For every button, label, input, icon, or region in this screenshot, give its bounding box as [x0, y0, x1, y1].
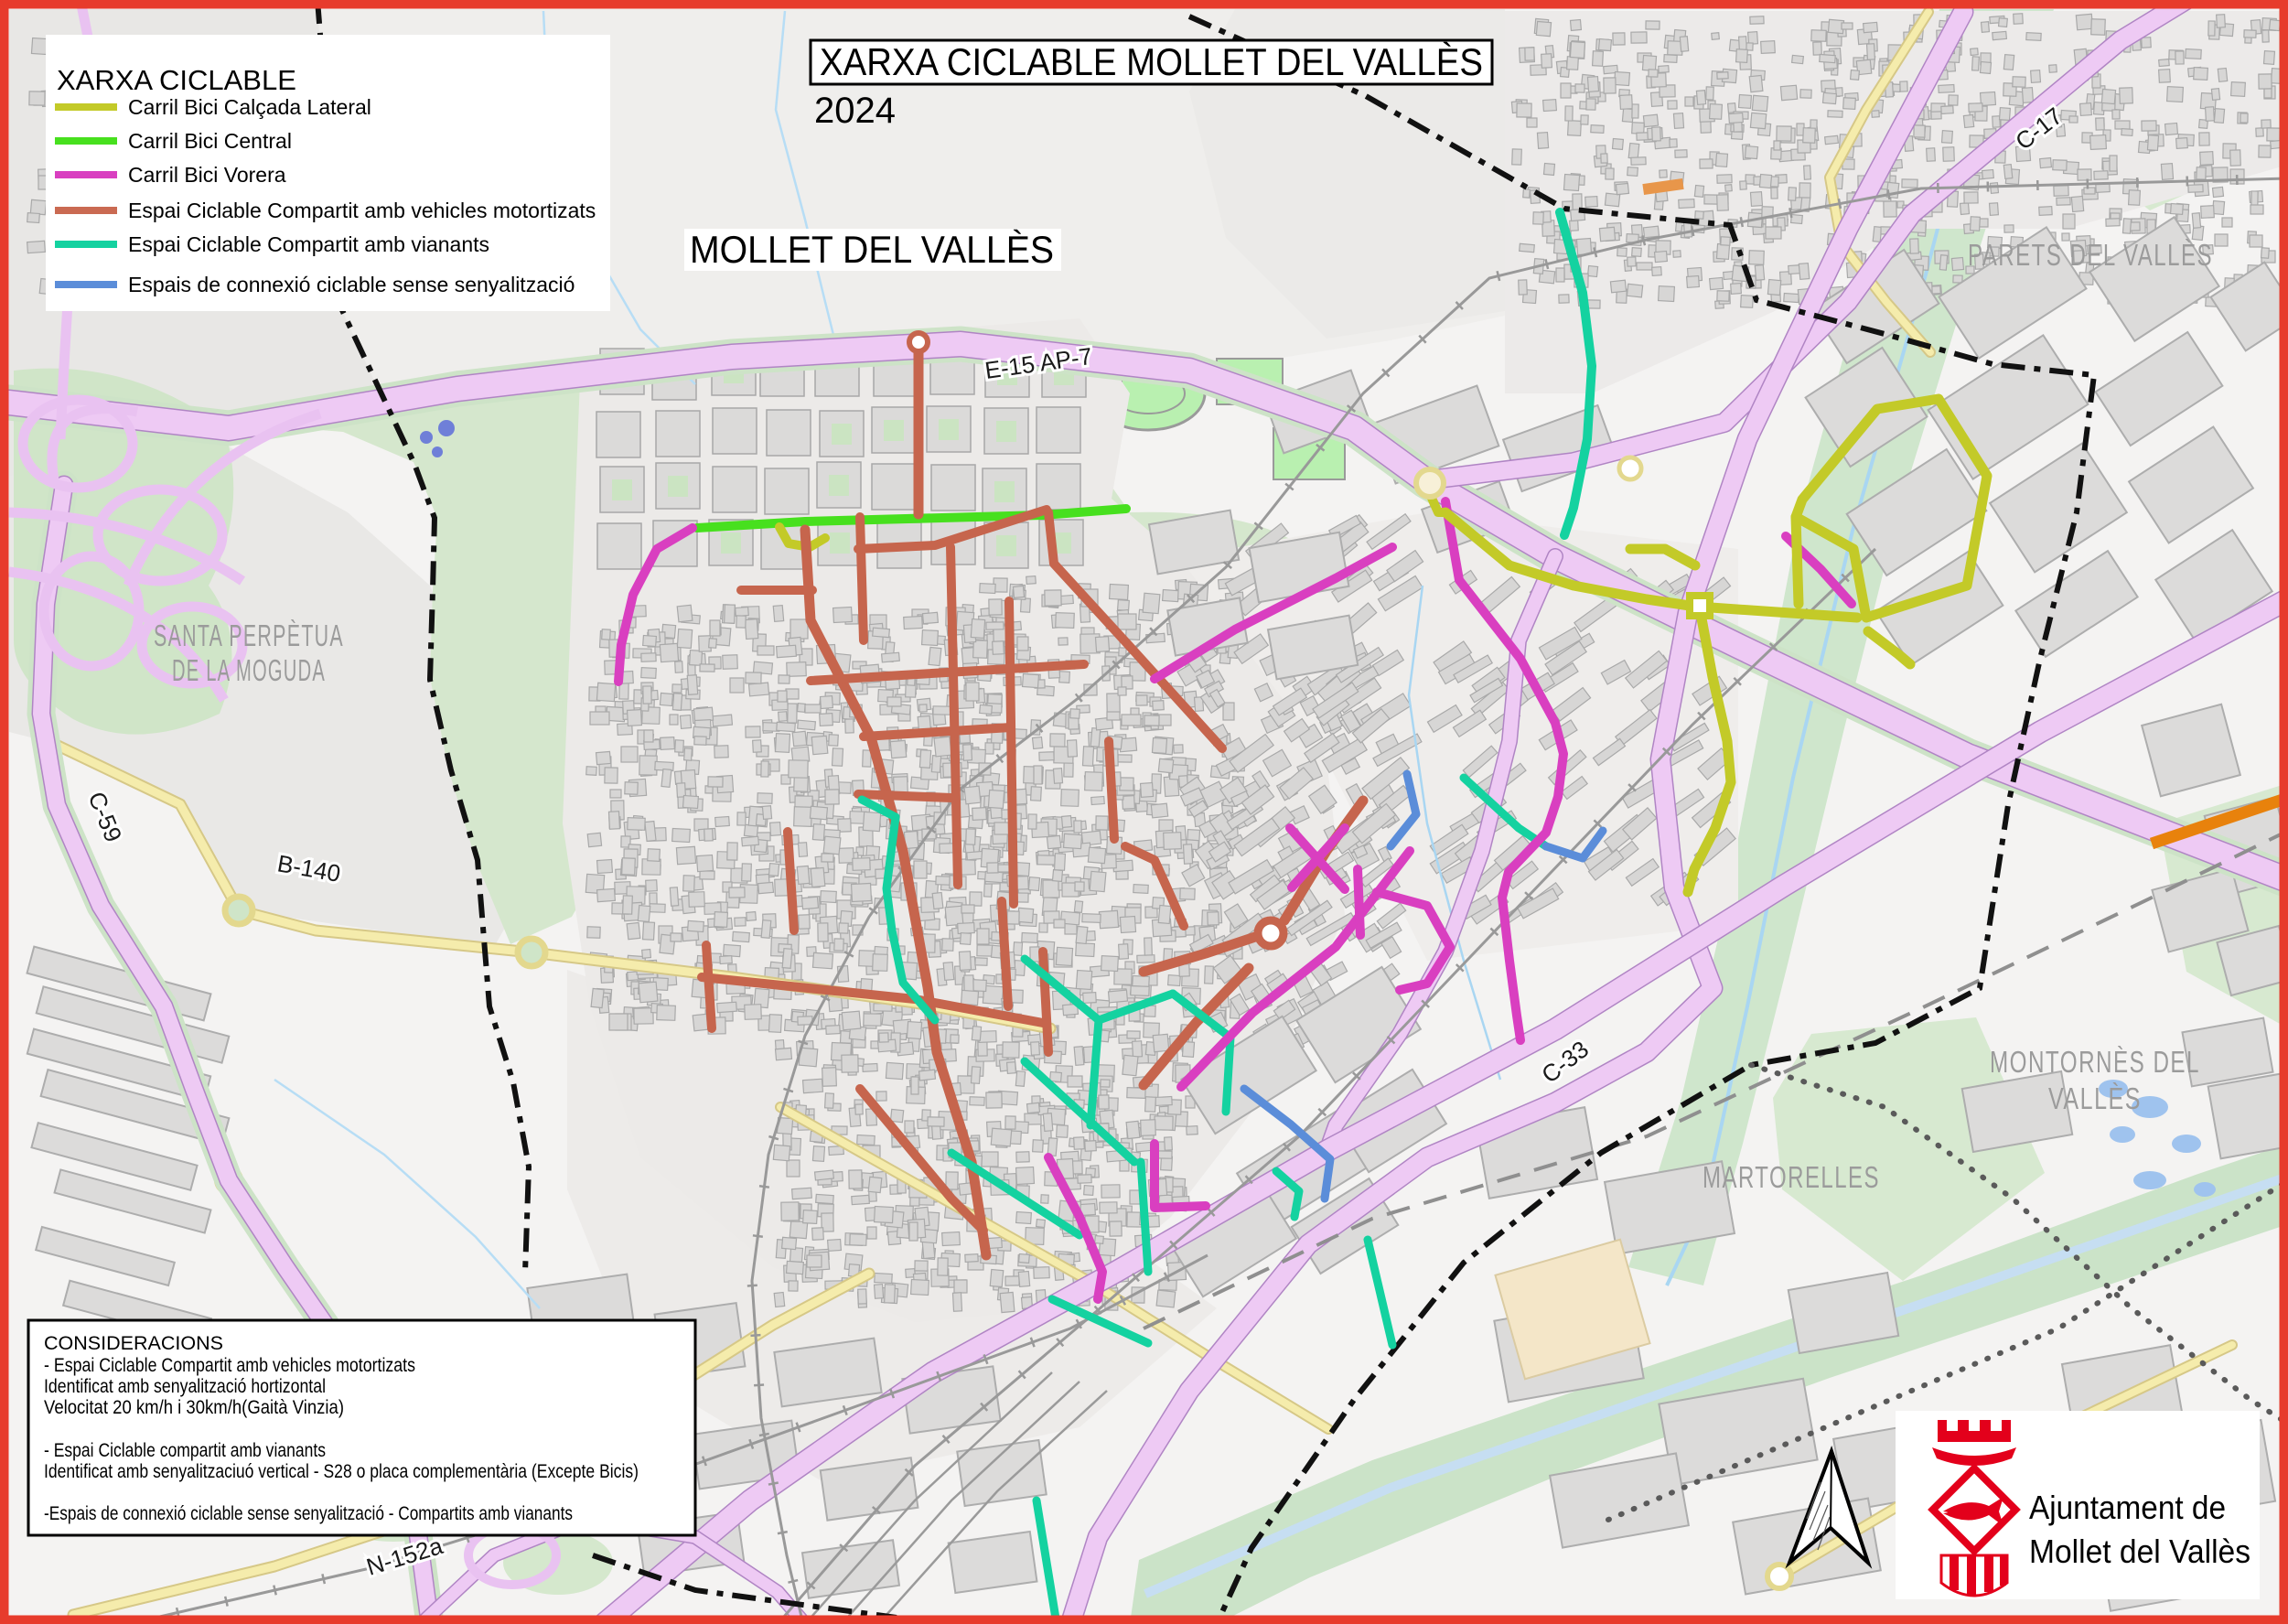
svg-text:XARXA CICLABLE: XARXA CICLABLE [57, 64, 296, 96]
svg-text:- Espai Ciclable compartit amb: - Espai Ciclable compartit amb vianants [44, 1440, 326, 1461]
svg-text:MARTORELLES: MARTORELLES [1703, 1160, 1880, 1194]
svg-text:MOLLET DEL VALLÈS: MOLLET DEL VALLÈS [690, 228, 1054, 271]
svg-text:-Espais de connexió ciclable s: -Espais de connexió ciclable sense senya… [44, 1503, 573, 1524]
svg-text:2024: 2024 [814, 91, 896, 131]
svg-text:Identificat amb senyalització: Identificat amb senyalització hortizonta… [44, 1376, 326, 1397]
svg-text:Mollet del Vallès: Mollet del Vallès [2029, 1533, 2250, 1570]
svg-text:Ajuntament de: Ajuntament de [2029, 1489, 2226, 1526]
svg-text:Espai Ciclable Compartit amb v: Espai Ciclable Compartit amb vehicles mo… [128, 199, 596, 222]
svg-text:DE LA MOGUDA: DE LA MOGUDA [172, 653, 326, 687]
svg-text:Espais de connexió ciclable se: Espais de connexió ciclable sense senyal… [128, 273, 575, 296]
svg-text:SANTA PERPÈTUA: SANTA PERPÈTUA [154, 618, 344, 652]
svg-text:Carril Bici Calçada Lateral: Carril Bici Calçada Lateral [128, 95, 371, 119]
svg-text:Carril Bici Central: Carril Bici Central [128, 129, 292, 153]
svg-text:XARXA CICLABLE MOLLET DEL VALL: XARXA CICLABLE MOLLET DEL VALLÈS [820, 40, 1483, 83]
svg-text:CONSIDERACIONS: CONSIDERACIONS [44, 1333, 223, 1354]
svg-text:MONTORNÈS DEL: MONTORNÈS DEL [1990, 1045, 2200, 1079]
svg-text:Espai Ciclable Compartit amb v: Espai Ciclable Compartit amb vianants [128, 232, 489, 256]
svg-text:VALLÈS: VALLÈS [2048, 1081, 2142, 1115]
svg-text:Carril Bici Vorera: Carril Bici Vorera [128, 163, 286, 187]
svg-text:PARETS DEL VALLÈS: PARETS DEL VALLÈS [1968, 238, 2213, 272]
svg-text:- Espai Ciclable Compartit amb: - Espai Ciclable Compartit amb vehicles … [44, 1355, 415, 1376]
svg-text:Velocitat 20 km/h i 30km/h(Gai: Velocitat 20 km/h i 30km/h(Gaità Vinzia) [44, 1397, 344, 1418]
svg-text:Identificat amb senyalitzaciuó: Identificat amb senyalitzaciuó vertical … [44, 1461, 639, 1482]
